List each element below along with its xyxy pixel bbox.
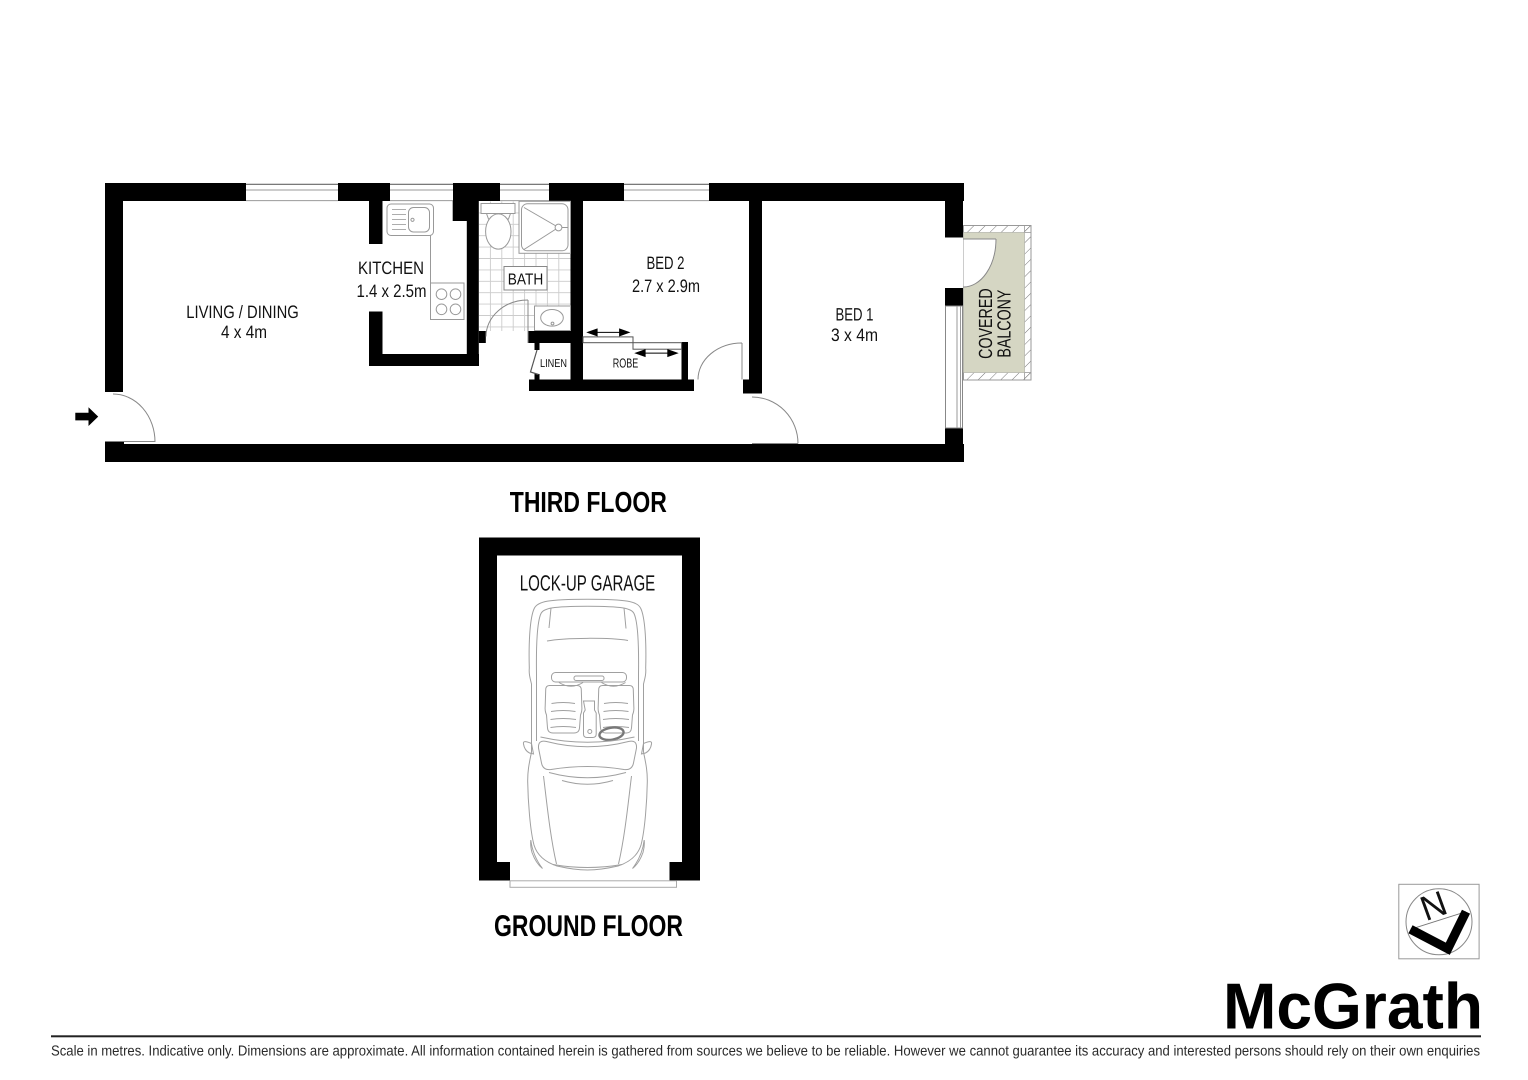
- svg-text:THIRD FLOOR: THIRD FLOOR: [510, 487, 667, 519]
- svg-text:2.7 x 2.9m: 2.7 x 2.9m: [632, 276, 700, 296]
- svg-text:3 x 4m: 3 x 4m: [831, 325, 878, 345]
- svg-text:1.4 x 2.5m: 1.4 x 2.5m: [357, 281, 427, 301]
- svg-text:LOCK-UP GARAGE: LOCK-UP GARAGE: [520, 570, 656, 595]
- svg-text:4 x 4m: 4 x 4m: [221, 322, 267, 342]
- svg-text:ROBE: ROBE: [613, 356, 639, 371]
- svg-text:BED 2: BED 2: [647, 253, 685, 273]
- svg-text:McGrath: McGrath: [1223, 969, 1483, 1042]
- svg-text:GROUND FLOOR: GROUND FLOOR: [494, 910, 683, 943]
- svg-text:Scale in metres. Indicative on: Scale in metres. Indicative only. Dimens…: [51, 1044, 1480, 1060]
- svg-text:BALCONY: BALCONY: [995, 289, 1016, 357]
- svg-text:LIVING / DINING: LIVING / DINING: [186, 302, 299, 322]
- svg-text:BED 1: BED 1: [836, 304, 874, 324]
- svg-text:KITCHEN: KITCHEN: [358, 258, 424, 278]
- svg-text:LINEN: LINEN: [540, 358, 567, 370]
- svg-text:BATH: BATH: [508, 271, 544, 288]
